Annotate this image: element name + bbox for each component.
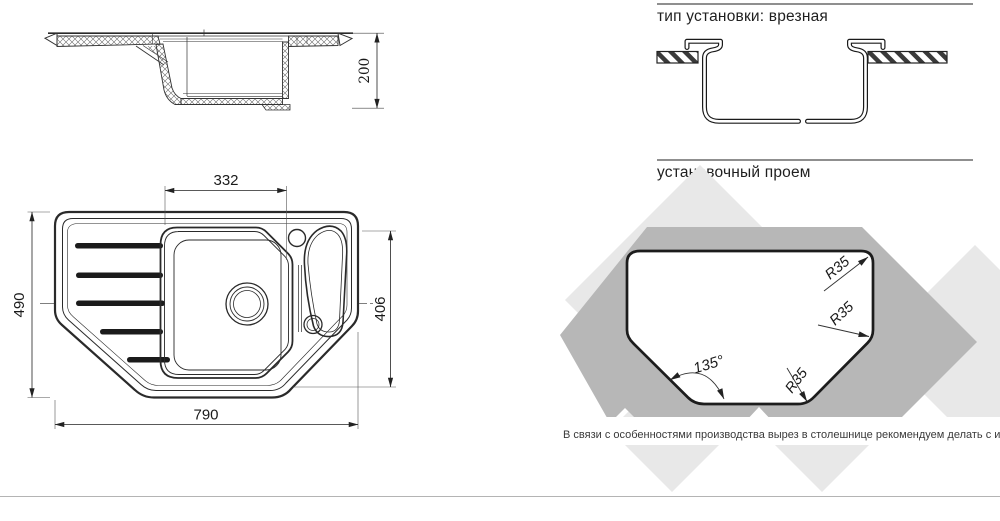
drainboard-rib — [76, 273, 163, 279]
bowl-left-wall-section — [156, 44, 181, 105]
top-view-drawing: 332 490 406 790 — [10, 168, 400, 440]
countertop-right — [868, 52, 947, 64]
drain-recess-section — [262, 105, 290, 111]
installation-type-diagram — [645, 30, 990, 150]
technical-drawing-page: 200 — [0, 0, 1000, 521]
right-ledge-section — [289, 36, 339, 47]
drainboard-section — [57, 36, 160, 47]
section-rule-middle — [657, 159, 973, 161]
overall-depth-label: 490 — [11, 292, 28, 317]
left-edge-tip — [45, 33, 57, 45]
drainboard-rib — [76, 301, 165, 307]
bowl-bottom-section — [181, 99, 283, 105]
page-bottom-rule — [0, 496, 1000, 497]
section-rule-top — [657, 3, 973, 5]
side-view-drawing: 200 — [30, 22, 395, 137]
drainboard-rib — [127, 357, 170, 363]
cutout-diagram: R35 R35 R35 135° — [560, 163, 1000, 496]
right-edge-tip — [338, 33, 352, 45]
bowl-width-label: 332 — [213, 172, 238, 189]
installation-type-title: тип установки: врезная — [657, 8, 828, 26]
sink-rim-profile — [687, 41, 883, 121]
drainboard-rib — [75, 243, 163, 249]
production-note: В связи с особенностями производства выр… — [563, 429, 997, 441]
side-view-body — [45, 30, 353, 111]
right-depth-label: 406 — [372, 296, 389, 321]
countertop-left — [657, 52, 698, 64]
drainboard-rib — [100, 329, 163, 335]
overall-width-label: 790 — [193, 407, 218, 424]
bowl-right-wall-section — [283, 42, 289, 99]
depth-dimension-label: 200 — [357, 58, 373, 84]
